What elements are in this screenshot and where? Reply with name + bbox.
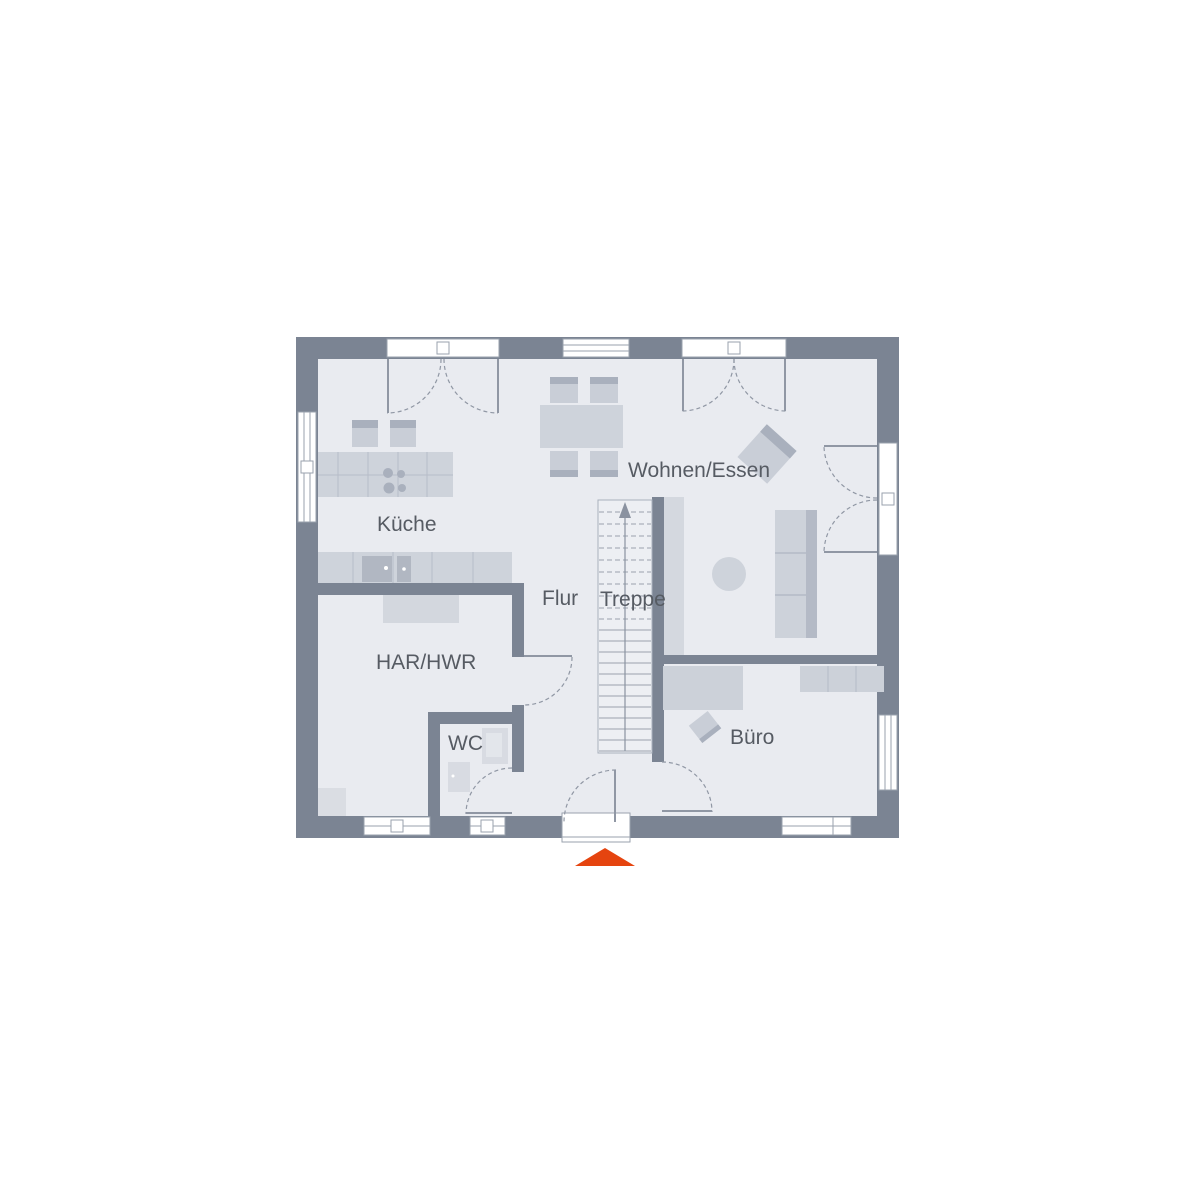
coffee-table [712,557,746,591]
toilet-icon [482,728,508,764]
window-top [563,339,629,357]
office-shelf [800,666,884,692]
label-kitchen: Küche [377,514,437,536]
wall-wc-left [428,712,440,816]
label-hall: Flur [542,588,578,610]
staircase [598,500,652,753]
dining-table [540,405,623,448]
label-utility: HAR/HWR [376,652,476,674]
office-desk [663,666,743,710]
floor-plan-page: Küche Wohnen/Essen Flur Treppe HAR/HWR W… [0,0,1200,1200]
utility-unit [318,788,346,816]
entrance-triangle-icon [575,848,635,866]
window-utility [364,817,430,835]
sofa [775,510,817,638]
kitchen-island [318,452,453,497]
kitchen-counter [318,552,512,583]
washbasin-icon [448,762,470,792]
label-living: Wohnen/Essen [628,460,770,482]
light-partition [664,497,684,655]
wall-hall-utility-upper [512,583,524,657]
wall-living-office [652,655,877,664]
utility-shelf [383,595,459,623]
wall-wc-top [428,712,524,724]
window-wc [470,817,505,835]
window-office [782,817,851,835]
window-right [879,715,897,790]
window-left [298,412,316,522]
label-wc: WC [448,733,483,755]
wall-stair-right [652,497,664,762]
label-stairs: Treppe [600,589,666,611]
label-office: Büro [730,727,774,749]
wall-kitchen-utility [318,583,524,595]
